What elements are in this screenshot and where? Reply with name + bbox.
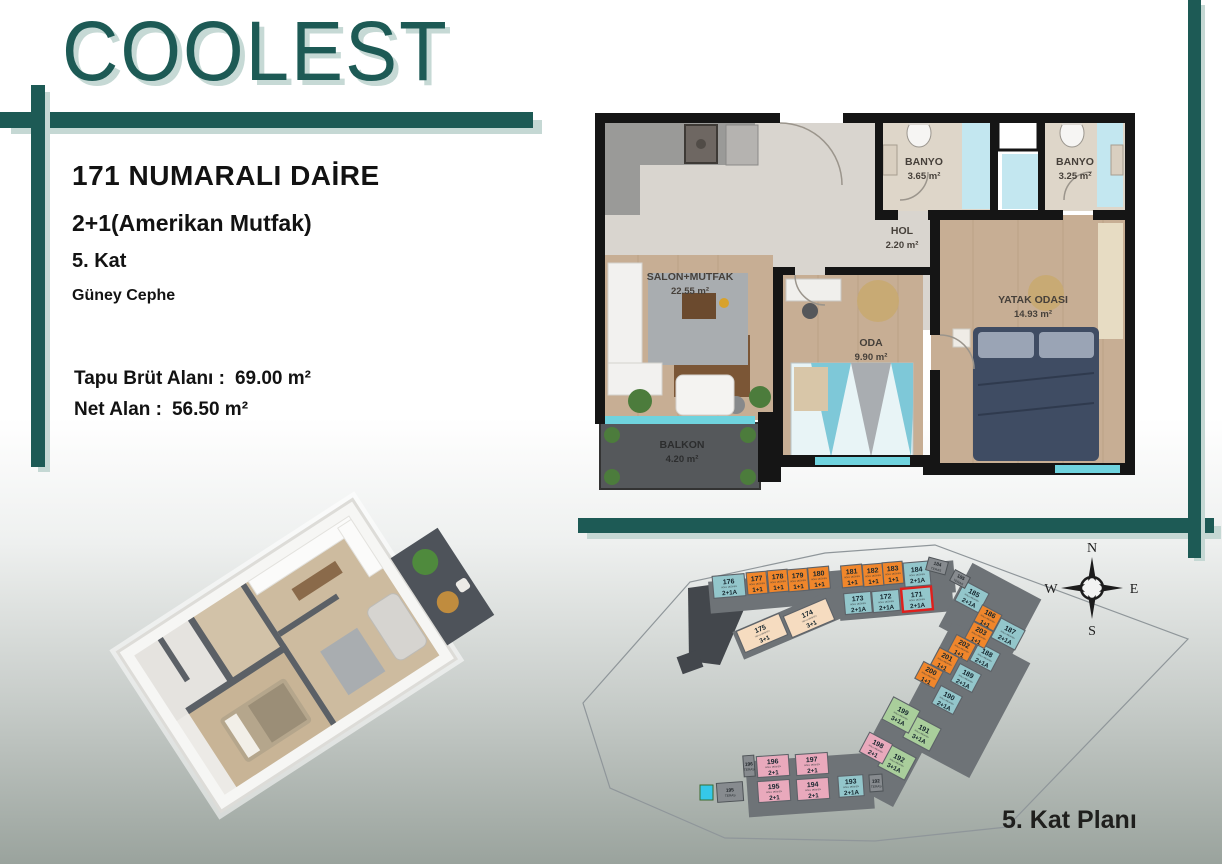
- plant-icon: [740, 469, 756, 485]
- apartment-facade: Güney Cephe: [72, 287, 175, 305]
- unit-number: 182: [867, 567, 879, 575]
- room-label: SALON+MUTFAK: [647, 271, 734, 283]
- divider-bar-middle-right: [578, 518, 1214, 533]
- unit-number: 179: [792, 572, 804, 580]
- unit-type: 2+1A: [910, 602, 926, 610]
- unit-type: 2+1: [769, 794, 781, 802]
- unit-number: 183: [887, 565, 899, 573]
- unit-type: 1+1: [752, 586, 764, 594]
- unit-type: 1+1: [868, 578, 880, 586]
- teras-label: TERAS: [725, 793, 736, 798]
- plant-icon: [749, 386, 771, 408]
- unit-number: 172: [880, 593, 892, 601]
- compass-e: E: [1130, 582, 1139, 597]
- shower-1: [962, 117, 990, 209]
- armchair: [676, 375, 734, 415]
- gross-area-line: Tapu Brüt Alanı :69.00 m²: [74, 368, 311, 390]
- site-unit-177: 177NOLU MESKEN1+1: [746, 571, 768, 595]
- net-area-label: Net Alan :: [74, 399, 162, 420]
- compass-w: W: [1044, 582, 1058, 597]
- site-teras-192: 192TERAS: [869, 774, 883, 792]
- room-label: YATAK ODASI: [998, 294, 1068, 306]
- room-area: 9.90 m²: [855, 352, 888, 363]
- unit-type: 1+1: [847, 579, 859, 587]
- washbasin: [1111, 145, 1123, 175]
- site-unit-193: 193NOLU MESKEN2+1A: [838, 775, 864, 798]
- site-unit-172: 172NOLU MESKEN2+1A: [872, 589, 901, 612]
- site-unit-182: 182NOLU MESKEN1+1: [862, 563, 884, 587]
- unit-type: 2+1: [808, 792, 820, 800]
- room-area: 14.93 m²: [1014, 309, 1052, 320]
- unit-type: 2+1A: [844, 789, 860, 797]
- plant-icon: [604, 427, 620, 443]
- pool: [700, 785, 713, 800]
- unit-number: 195: [768, 783, 780, 791]
- site-unit-178: 178NOLU MESKEN1+1: [767, 569, 789, 593]
- unit-number: 181: [846, 568, 858, 576]
- desk-chair: [802, 303, 818, 319]
- site-teras-196: 196TERAS: [743, 755, 755, 777]
- site-unit-183: 183NOLU MESKEN1+1: [882, 561, 904, 585]
- siteplan-title: 5. Kat Planı: [1002, 806, 1137, 835]
- site-unit-173: 173NOLU MESKEN2+1A: [844, 591, 873, 614]
- unit-number: 171: [911, 591, 923, 599]
- unit-number: 176: [723, 578, 735, 586]
- desk: [786, 279, 841, 301]
- unit-number: 197: [806, 756, 818, 764]
- unit-type: 1+1: [773, 584, 785, 592]
- site-unit-197: 197NOLU MESKEN2+1: [795, 752, 828, 775]
- unit-type: 2+1: [807, 767, 819, 775]
- unit-number: 194: [807, 781, 819, 789]
- wardrobe: [1098, 223, 1123, 339]
- site-unit-180: 180NOLU MESKEN1+1: [808, 566, 831, 590]
- room-area: 2.20 m²: [886, 240, 919, 251]
- unit-type: 2+1A: [910, 577, 926, 585]
- unit-number: 178: [772, 573, 784, 581]
- bed-double: [973, 327, 1099, 461]
- site-unit-181: 181NOLU MESKEN1+1: [841, 564, 864, 588]
- window: [815, 457, 910, 465]
- gross-area-label: Tapu Brüt Alanı :: [74, 368, 225, 389]
- round-rug: [857, 280, 899, 322]
- gross-area-value: 69.00 m²: [235, 368, 311, 389]
- site-unit-195: 195NOLU MESKEN2+1: [757, 779, 790, 802]
- apartment-type: 2+1(Amerikan Mutfak): [72, 210, 312, 237]
- room-area: 3.25 m²: [1059, 171, 1092, 182]
- plant-icon: [604, 469, 620, 485]
- room-area: 22.55 m²: [671, 286, 709, 297]
- unit-number: 180: [813, 570, 825, 578]
- room-label: BALKON: [660, 439, 705, 451]
- room-label: ODA: [859, 337, 883, 349]
- compass-n: N: [1087, 541, 1097, 556]
- compass-icon: N S W E: [1044, 541, 1138, 639]
- site-unit-171: 171NOLU MESKEN2+1A: [901, 586, 933, 612]
- room-label: HOL: [891, 225, 914, 237]
- window: [1055, 465, 1120, 473]
- unit-type: 2+1A: [722, 589, 738, 597]
- room-area: 3.65 m²: [908, 171, 941, 182]
- unit-number: 173: [852, 595, 864, 603]
- unit-number: 177: [751, 575, 763, 583]
- room-label: BANYO: [1056, 156, 1094, 168]
- unit-number: 193: [845, 778, 857, 786]
- washbasin: [883, 145, 897, 175]
- window: [605, 416, 755, 424]
- unit-number: 196: [767, 758, 779, 766]
- divider-bar-vertical-right: [1188, 0, 1201, 558]
- shower-mid: [1002, 154, 1038, 209]
- bed-single: [791, 363, 913, 457]
- floorplan-2d: SALON+MUTFAK 22.55 m² BANYO 3.65 m² BANY…: [578, 105, 1138, 495]
- teras-label: TERAS: [871, 784, 882, 789]
- unit-type: 1+1: [793, 583, 805, 591]
- net-area-value: 56.50 m²: [172, 399, 248, 420]
- room-label: BANYO: [905, 156, 943, 168]
- unit-type: 2+1: [768, 769, 780, 777]
- unit-type: 1+1: [814, 581, 826, 589]
- divider-bar-top-left: [0, 112, 533, 128]
- page-title: 171 NUMARALI DAİRE: [72, 160, 380, 192]
- fridge: [726, 125, 758, 165]
- isometric-floorplan-3d: [85, 478, 505, 858]
- compass-s: S: [1088, 624, 1096, 639]
- net-area-line: Net Alan :56.50 m²: [74, 399, 248, 421]
- unit-type: 1+1: [888, 576, 900, 584]
- plant-icon: [740, 427, 756, 443]
- room-area: 4.20 m²: [666, 454, 699, 465]
- site-unit-176: 176NOLU MESKEN2+1A: [712, 574, 746, 599]
- plant-icon: [628, 389, 652, 413]
- unit-type: 2+1A: [879, 604, 895, 612]
- teras-label: TERAS: [744, 767, 755, 772]
- unit-type: 2+1A: [851, 606, 867, 614]
- site-unit-194: 194NOLU MESKEN2+1: [796, 777, 829, 800]
- unit-number: 184: [911, 566, 923, 574]
- site-unit-179: 179NOLU MESKEN1+1: [787, 568, 809, 592]
- apartment-floor: 5. Kat: [72, 250, 126, 273]
- site-teras-195: 195TERAS: [716, 782, 743, 803]
- divider-bar-vertical-left: [31, 85, 45, 467]
- brand-logo: COOLEST: [62, 2, 449, 100]
- site-unit-196: 196NOLU MESKEN2+1: [756, 754, 789, 777]
